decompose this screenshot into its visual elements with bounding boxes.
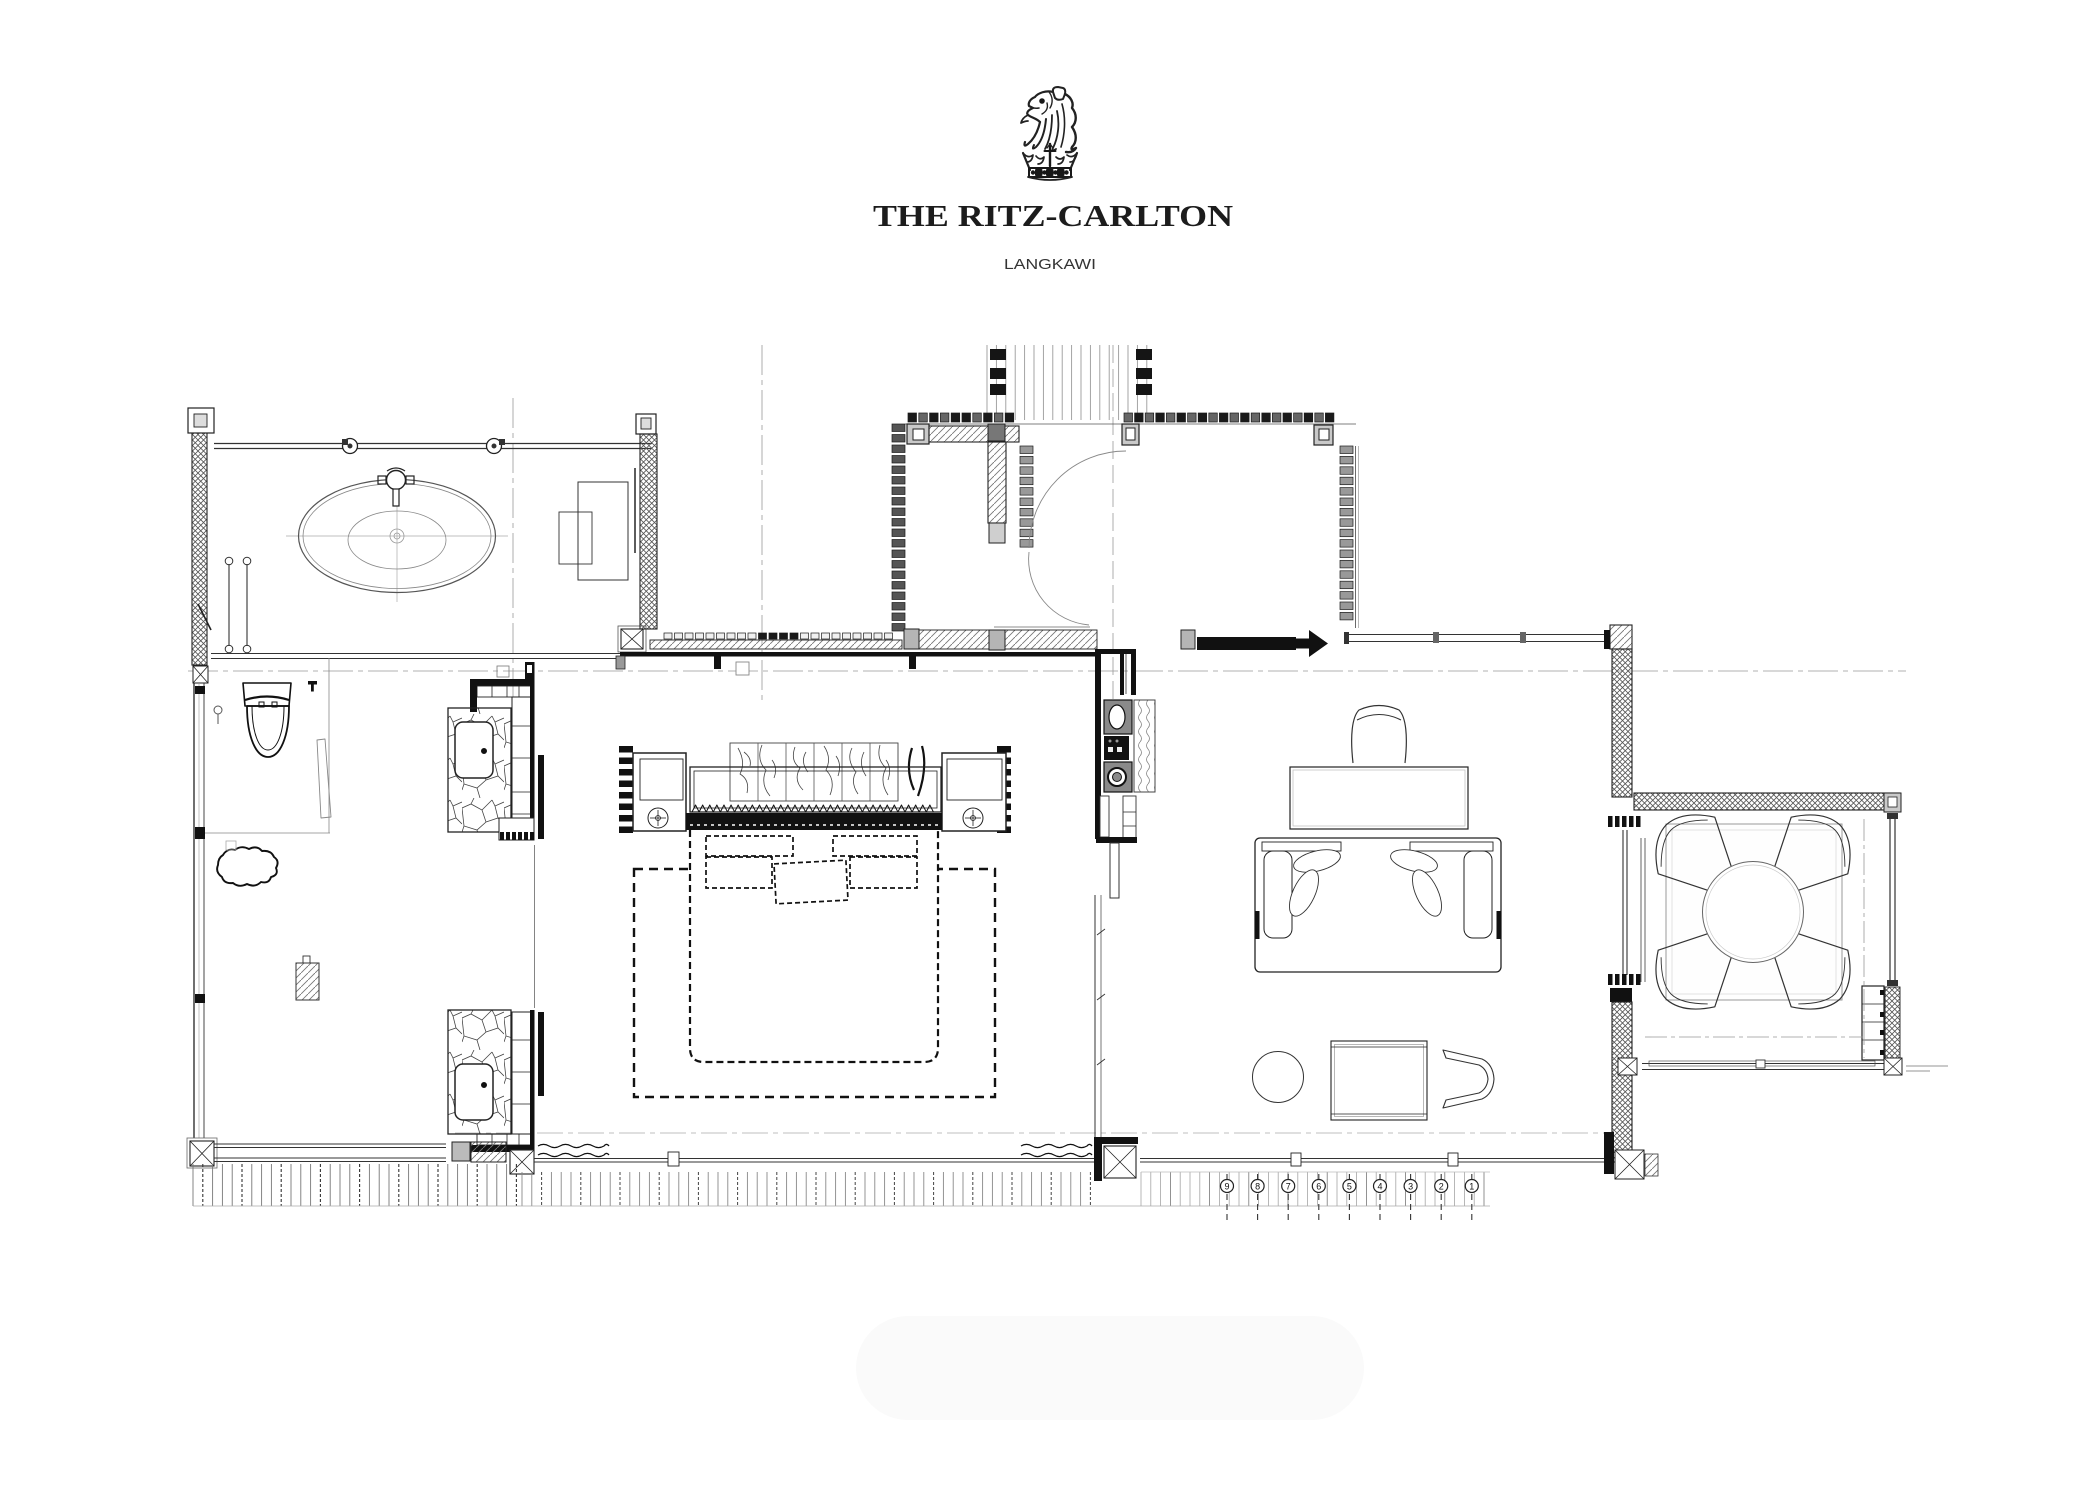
svg-text:7: 7 xyxy=(1286,1182,1291,1192)
svg-text:4: 4 xyxy=(1377,1182,1382,1192)
svg-text:2: 2 xyxy=(1439,1182,1444,1192)
svg-text:9: 9 xyxy=(1224,1182,1229,1192)
svg-text:8: 8 xyxy=(1255,1182,1260,1192)
svg-text:5: 5 xyxy=(1347,1182,1352,1192)
svg-text:THE RITZ-CARLTON: THE RITZ-CARLTON xyxy=(873,198,1233,233)
svg-text:3: 3 xyxy=(1408,1182,1413,1192)
svg-text:LANGKAWI: LANGKAWI xyxy=(1004,256,1096,273)
svg-text:1: 1 xyxy=(1469,1182,1474,1192)
svg-text:6: 6 xyxy=(1316,1182,1321,1192)
